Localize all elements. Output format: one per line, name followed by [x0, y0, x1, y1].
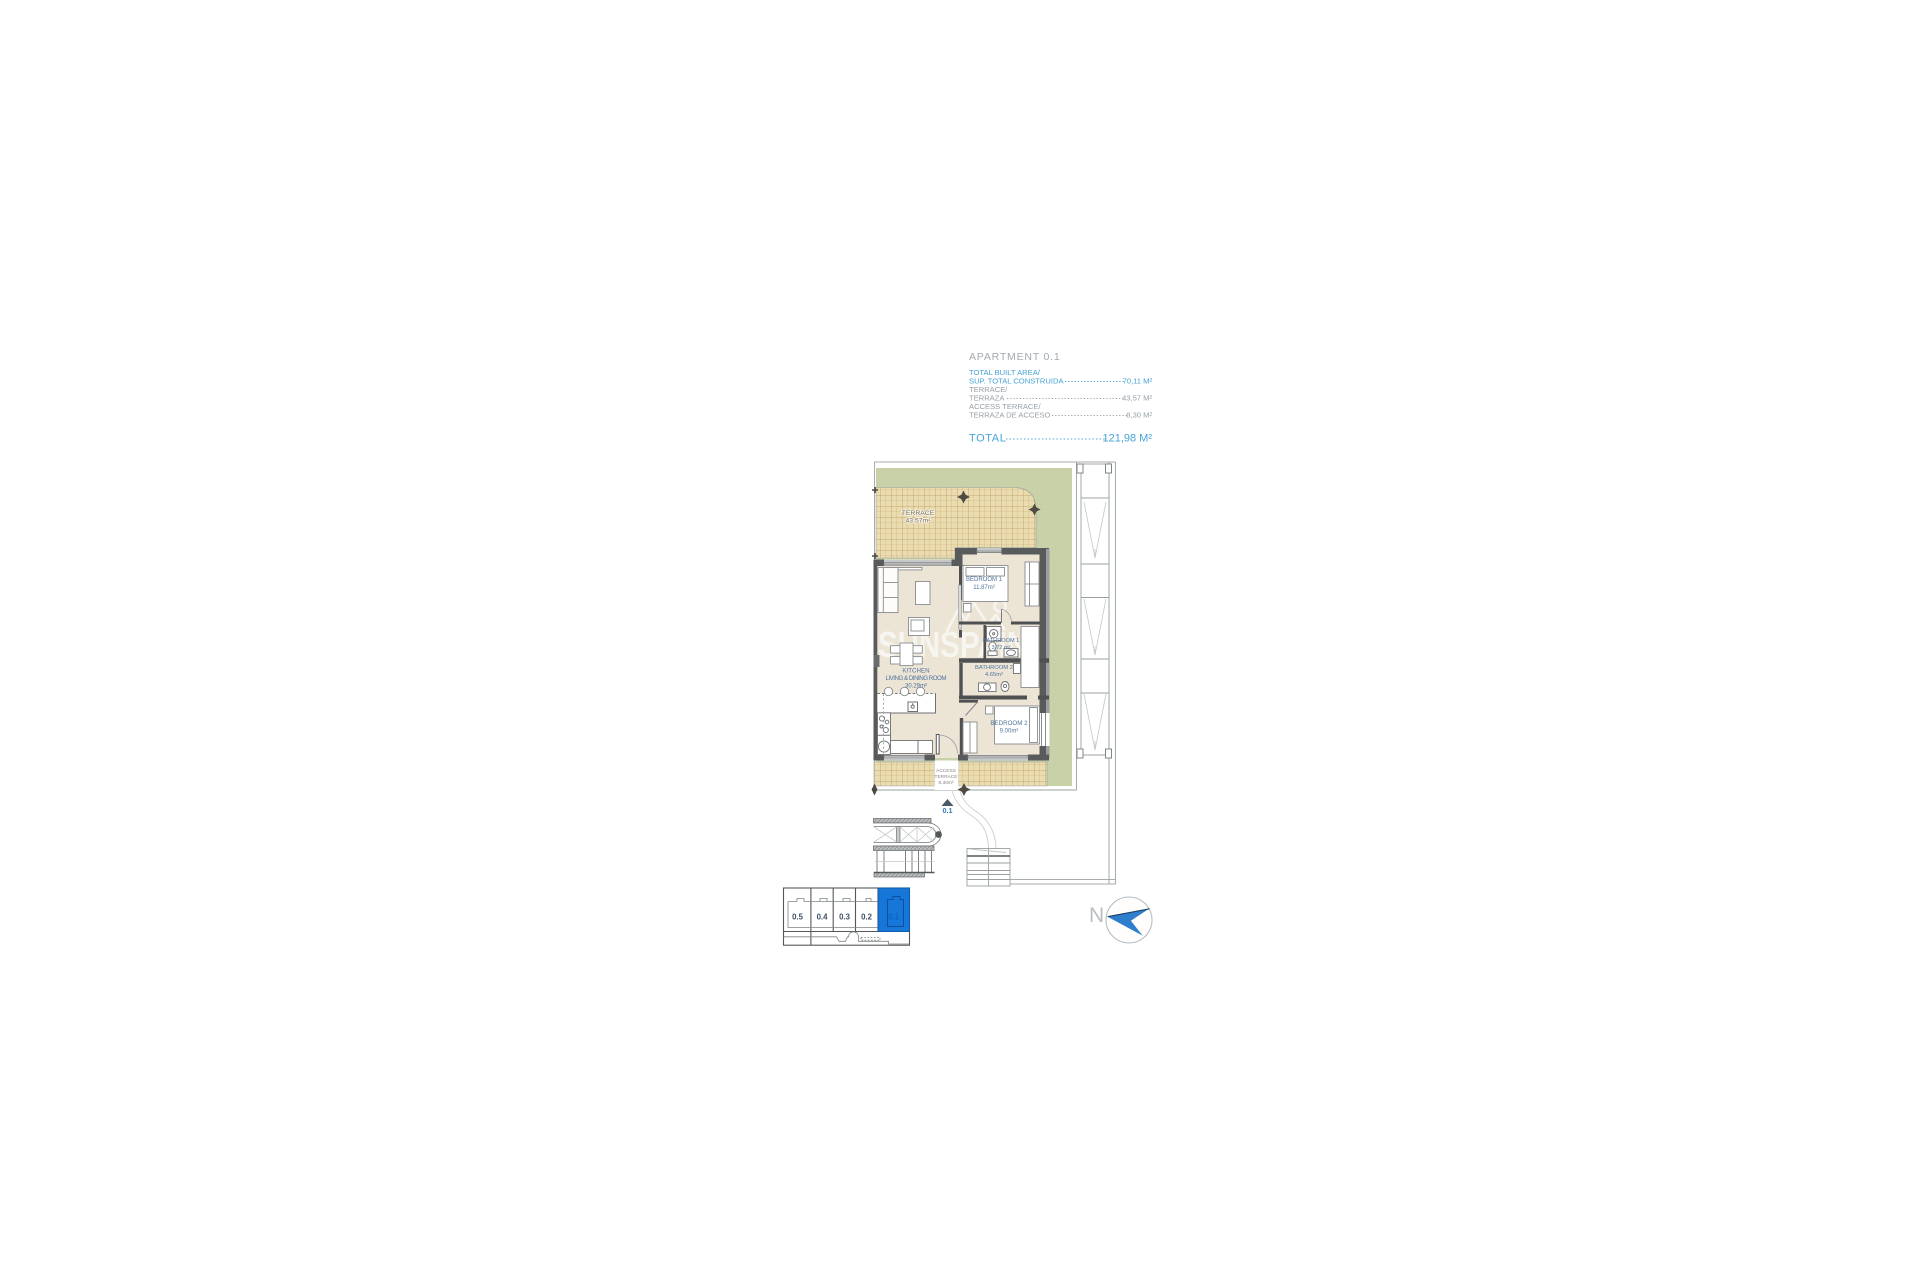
svg-text:9.00m²: 9.00m²: [1000, 729, 1019, 735]
svg-text:3.72 m²: 3.72 m²: [992, 645, 1011, 651]
svg-text:8,30 M²: 8,30 M²: [1126, 411, 1152, 420]
svg-text:43,57 M²: 43,57 M²: [1122, 394, 1152, 403]
svg-text:4.65m²: 4.65m²: [985, 672, 1003, 678]
svg-text:BATHROOM 2: BATHROOM 2: [975, 665, 1013, 671]
svg-text:0.5: 0.5: [792, 913, 804, 922]
svg-text:0.2: 0.2: [861, 913, 873, 922]
svg-text:TERRACE: TERRACE: [935, 774, 958, 780]
svg-text:TERRAZA DE ACCESO: TERRAZA DE ACCESO: [969, 411, 1051, 420]
svg-text:30.29m²: 30.29m²: [905, 684, 927, 690]
svg-text:LIVING & DINING ROOM: LIVING & DINING ROOM: [886, 675, 947, 682]
svg-text:121,98 M²: 121,98 M²: [1102, 433, 1152, 445]
svg-text:0.1: 0.1: [943, 806, 953, 815]
svg-text:0.4: 0.4: [817, 913, 829, 922]
svg-text:ACCESS: ACCESS: [936, 768, 956, 774]
svg-text:N: N: [1089, 904, 1104, 927]
svg-text:KITCHEN: KITCHEN: [902, 668, 929, 675]
svg-text:0.1: 0.1: [888, 913, 900, 922]
svg-text:TERRACE: TERRACE: [902, 510, 935, 517]
svg-text:11.87m²: 11.87m²: [973, 585, 995, 591]
svg-text:0.3: 0.3: [839, 913, 851, 922]
svg-text:70,11 M²: 70,11 M²: [1123, 377, 1153, 386]
svg-text:8.30m²: 8.30m²: [939, 780, 954, 786]
svg-text:APARTMENT 0.1: APARTMENT 0.1: [969, 351, 1061, 363]
svg-text:TOTAL: TOTAL: [969, 433, 1006, 445]
svg-text:BEDROOM 2: BEDROOM 2: [990, 720, 1028, 727]
svg-text:BEDROOM 1: BEDROOM 1: [966, 577, 1003, 583]
svg-text:43.57m²: 43.57m²: [906, 518, 932, 525]
svg-text:BATHROOM 1: BATHROOM 1: [983, 638, 1020, 644]
